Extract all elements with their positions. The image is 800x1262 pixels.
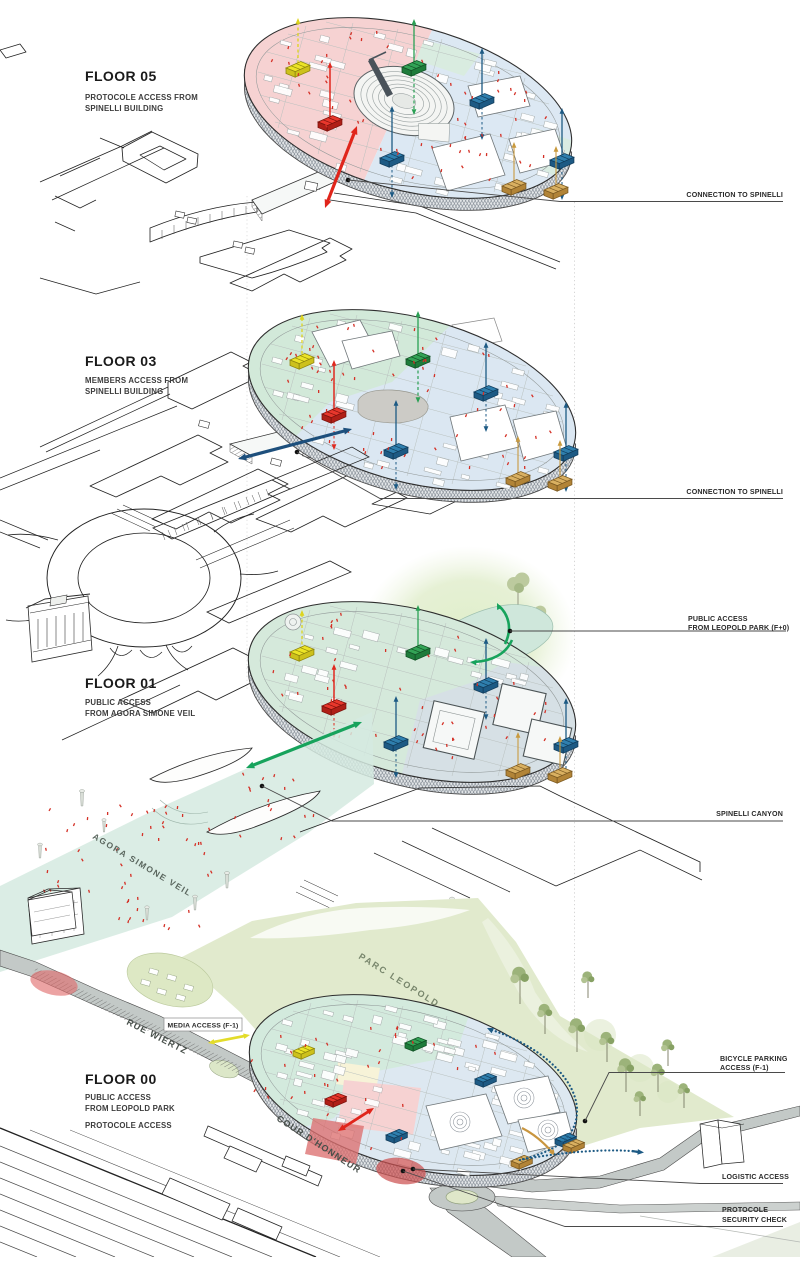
- svg-text:SECURITY CHECK: SECURITY CHECK: [722, 1216, 788, 1224]
- svg-text:ACCESS (F-1): ACCESS (F-1): [720, 1064, 769, 1072]
- svg-text:BICYCLE PARKING: BICYCLE PARKING: [720, 1055, 788, 1063]
- svg-text:LOGISTIC ACCESS: LOGISTIC ACCESS: [722, 1173, 789, 1181]
- svg-text:PUBLIC ACCESS: PUBLIC ACCESS: [688, 615, 748, 623]
- svg-text:SPINELLI BUILDING: SPINELLI BUILDING: [85, 387, 163, 396]
- svg-text:FROM LEOPOLD PARK (F+0): FROM LEOPOLD PARK (F+0): [688, 624, 790, 632]
- svg-text:FLOOR 03: FLOOR 03: [85, 353, 157, 369]
- svg-text:PROTOCOLE ACCESS: PROTOCOLE ACCESS: [85, 1121, 172, 1130]
- svg-text:PUBLIC ACCESS: PUBLIC ACCESS: [85, 698, 151, 707]
- svg-text:SPINELLI CANYON: SPINELLI CANYON: [716, 810, 783, 818]
- svg-text:PROTOCOLE ACCESS FROM: PROTOCOLE ACCESS FROM: [85, 93, 198, 102]
- svg-text:SPINELLI BUILDING: SPINELLI BUILDING: [85, 104, 163, 113]
- svg-text:CONNECTION TO SPINELLI: CONNECTION TO SPINELLI: [686, 191, 783, 199]
- svg-text:FLOOR 05: FLOOR 05: [85, 68, 157, 84]
- svg-text:MEDIA ACCESS (F-1): MEDIA ACCESS (F-1): [168, 1023, 239, 1030]
- svg-text:MEMBERS ACCESS FROM: MEMBERS ACCESS FROM: [85, 376, 188, 385]
- svg-text:CONNECTION TO SPINELLI: CONNECTION TO SPINELLI: [686, 488, 783, 496]
- svg-text:FLOOR 00: FLOOR 00: [85, 1071, 157, 1087]
- svg-text:PROTOCOLE: PROTOCOLE: [722, 1206, 768, 1214]
- svg-text:FROM AGORA SIMONE VEIL: FROM AGORA SIMONE VEIL: [85, 709, 195, 718]
- svg-text:PUBLIC ACCESS: PUBLIC ACCESS: [85, 1093, 151, 1102]
- svg-text:FROM LEOPOLD PARK: FROM LEOPOLD PARK: [85, 1104, 175, 1113]
- svg-text:FLOOR 01: FLOOR 01: [85, 675, 157, 691]
